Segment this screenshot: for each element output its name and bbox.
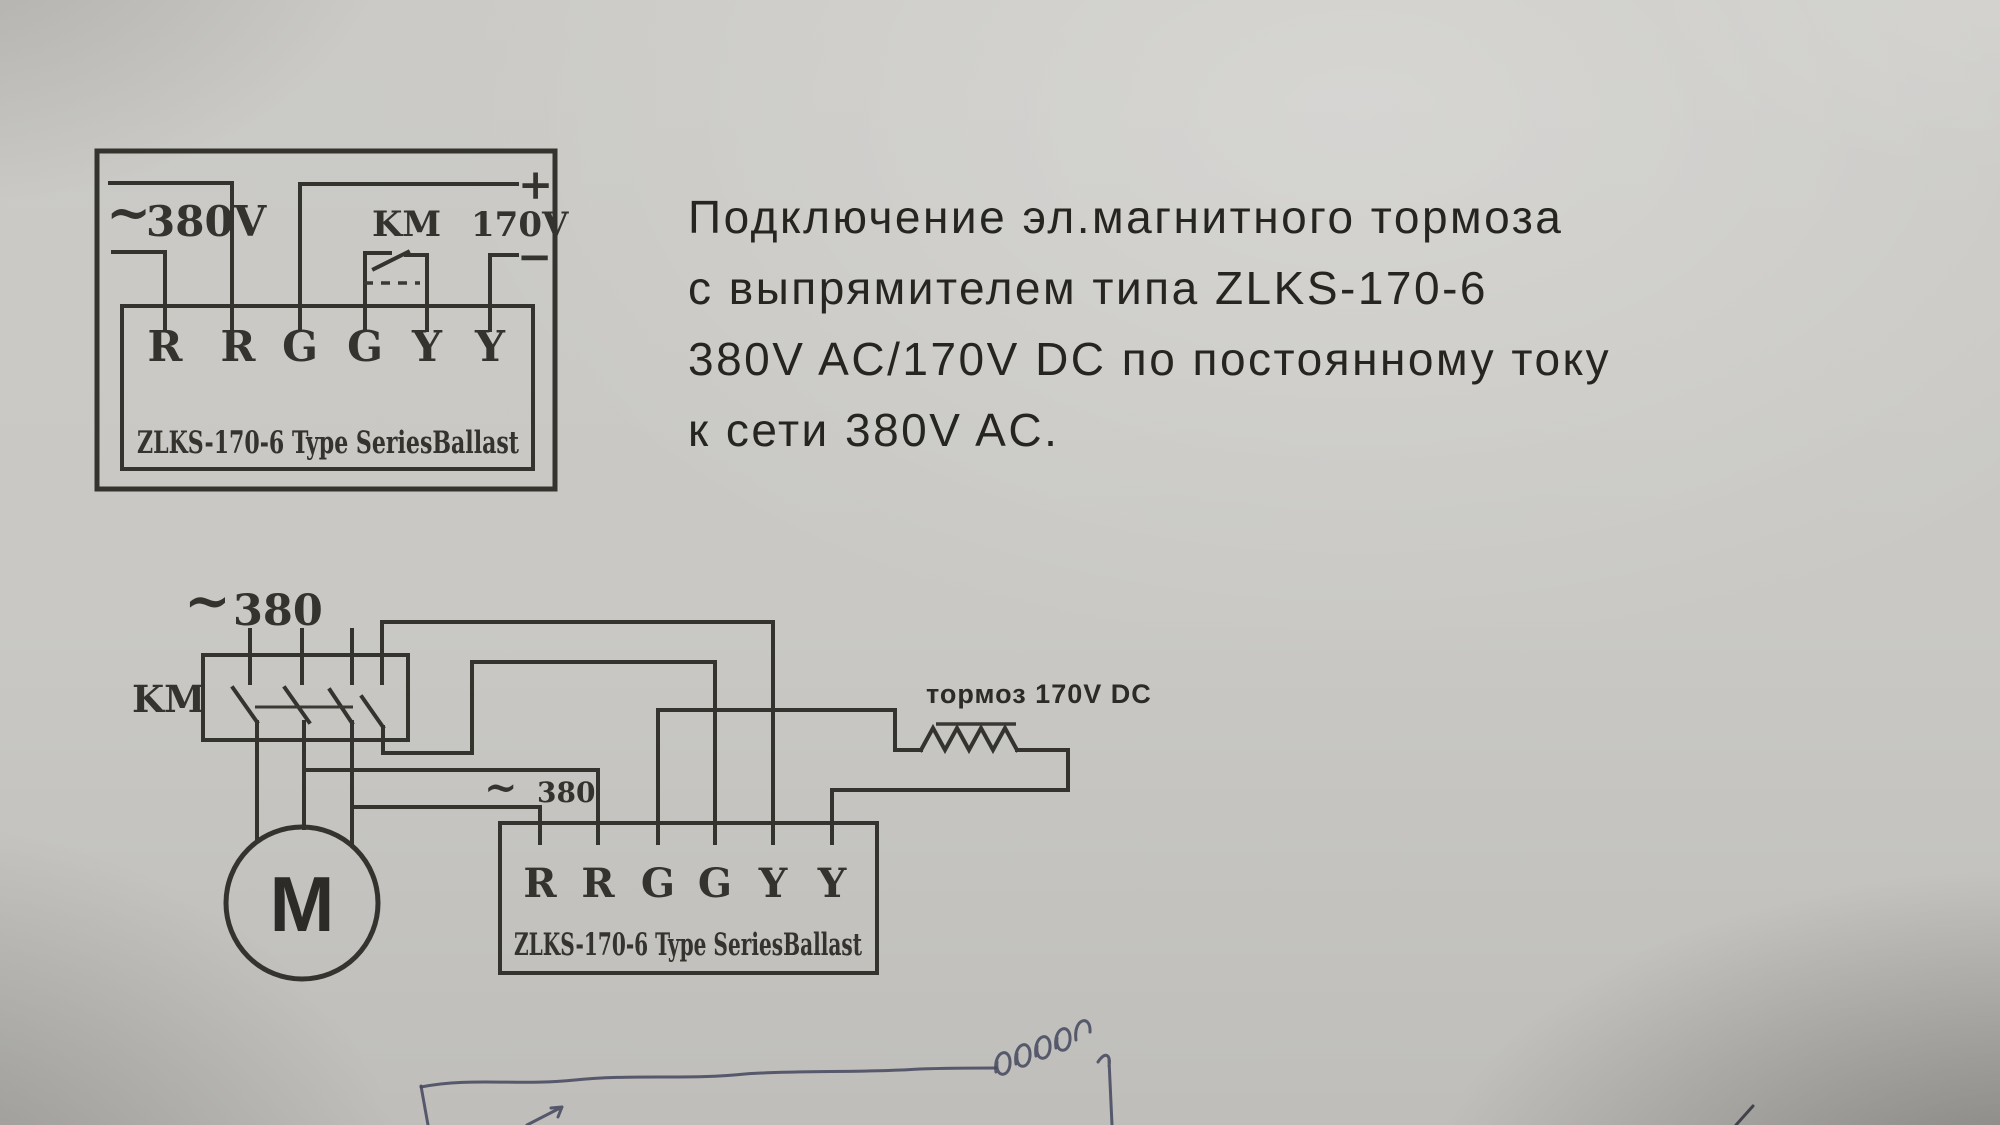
terminal-letter: G	[347, 322, 383, 371]
motor-label: M	[270, 860, 335, 948]
wiring-diagram-svg: ~ 380V KM 170V + − R R G G Y Y ZLKS-170-…	[0, 0, 2000, 1125]
km-contact-right-leg	[406, 255, 427, 330]
terminal-letter: G	[641, 860, 675, 907]
photographed-page: ~ 380V KM 170V + − R R G G Y Y ZLKS-170-…	[0, 0, 2000, 1125]
ac-tilde-symbol: ~	[184, 568, 231, 634]
zlks-device-label: ZLKS-170-6 Type SeriesBallast	[514, 927, 862, 963]
pen-right-stroke	[1098, 1055, 1112, 1125]
main-wiring-diagram: ~ 380 KM ~ 380	[132, 568, 1152, 979]
brake-circuit: тормоз 170V DC	[658, 679, 1152, 843]
pen-corner-stroke	[1736, 1106, 1753, 1125]
zlks-terminal-block: R R G G Y Y ZLKS-170-6 Type SeriesBallas…	[500, 823, 877, 973]
km-label: KM	[132, 677, 205, 721]
description-line: с выпрямителем типа ZLKS-170-6	[688, 262, 1488, 314]
km-contact	[364, 252, 427, 330]
pen-coil-scribble	[996, 1021, 1090, 1075]
plus-label: +	[518, 160, 553, 209]
description-line: 380V AC/170V DC по постоянному току	[688, 333, 1611, 385]
description-text: Подключение эл.магнитного тормоза с выпр…	[688, 191, 1611, 456]
terminal-letter: Y	[474, 322, 506, 371]
minus-label: −	[517, 232, 552, 281]
blade-4	[362, 697, 383, 727]
ac-supply-label: 380	[233, 586, 323, 636]
terminal-letter: G	[698, 860, 732, 907]
brake-coil	[921, 728, 1017, 750]
ballast-device-label: ZLKS-170-6 Type SeriesBallast	[137, 425, 519, 461]
km-label: KM	[372, 204, 441, 245]
ballast-terminals: R R G G Y Y	[148, 322, 506, 371]
terminal-letter: R	[581, 860, 615, 907]
description-line: к сети 380V AC.	[688, 404, 1059, 456]
terminal-letter: R	[221, 322, 257, 371]
brake-return-wire	[832, 750, 1068, 843]
terminal-letter: R	[148, 322, 184, 371]
ac-tilde-symbol: ~	[106, 180, 151, 244]
blade-1	[233, 688, 257, 722]
reference-schematic: ~ 380V KM 170V + − R R G G Y Y ZLKS-170-…	[97, 151, 569, 489]
terminal-letter: Y	[411, 322, 443, 371]
dc-minus-wire	[490, 255, 517, 330]
blade-2	[285, 688, 309, 722]
ac-input-label: 380	[537, 776, 595, 809]
terminal-letter: G	[282, 322, 318, 371]
ac-supply-label: 380V	[146, 197, 268, 246]
description-line: Подключение эл.магнитного тормоза	[688, 191, 1563, 243]
terminal-letter: Y	[817, 860, 847, 907]
handwritten-sketch	[421, 1021, 1753, 1125]
motor-symbol: M	[226, 827, 378, 979]
ac-input-tilde-symbol: ~	[484, 764, 518, 811]
pen-wavy-line	[421, 1068, 996, 1087]
terminal-letter: R	[523, 860, 557, 907]
pen-arrow-stroke	[527, 1107, 562, 1125]
pen-left-stroke	[421, 1086, 428, 1125]
brake-label: тормоз 170V DC	[926, 679, 1152, 709]
terminal-letter: Y	[758, 860, 788, 907]
wire-pole4-bottom-to-g2	[383, 662, 715, 843]
